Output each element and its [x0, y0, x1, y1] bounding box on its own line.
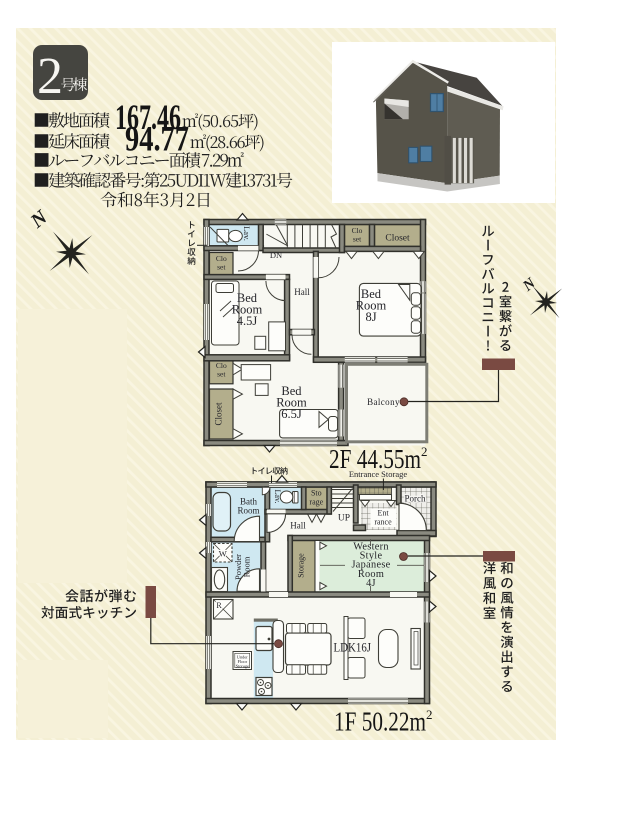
- svg-text:Room: Room: [242, 556, 252, 577]
- svg-text:Closet: Closet: [385, 234, 410, 244]
- svg-text:UP: UP: [338, 514, 350, 524]
- svg-text:Porch: Porch: [405, 494, 426, 504]
- svg-text:94.77: 94.77: [125, 119, 189, 159]
- svg-text:LDK16J: LDK16J: [334, 641, 372, 655]
- svg-text:Storage: Storage: [236, 663, 249, 668]
- svg-text:Balcony: Balcony: [367, 397, 400, 407]
- svg-text:2: 2: [426, 707, 433, 722]
- svg-text:set: set: [217, 263, 226, 272]
- svg-text:1F 50.22m: 1F 50.22m: [334, 707, 426, 737]
- svg-text:DN: DN: [270, 250, 282, 260]
- svg-text:R: R: [216, 601, 222, 610]
- svg-text:Sto: Sto: [311, 489, 322, 498]
- svg-text:Hall: Hall: [294, 287, 310, 297]
- svg-text:4J: 4J: [366, 578, 376, 589]
- svg-text:Room: Room: [237, 506, 259, 516]
- svg-text:6.5J: 6.5J: [281, 407, 302, 421]
- svg-text:Storage: Storage: [296, 553, 305, 578]
- svg-text:8J: 8J: [365, 310, 376, 324]
- svg-text:rage: rage: [309, 498, 323, 507]
- svg-text:Entrance Storage: Entrance Storage: [349, 469, 408, 479]
- svg-text:4.5J: 4.5J: [237, 314, 258, 328]
- svg-text:Hall: Hall: [290, 521, 306, 531]
- svg-text:Lav.: Lav.: [273, 490, 282, 504]
- svg-text:2: 2: [421, 444, 428, 459]
- svg-text:Closet: Closet: [213, 402, 223, 426]
- svg-text:2: 2: [37, 48, 63, 105]
- svg-text:set: set: [353, 235, 362, 244]
- svg-text:set: set: [217, 370, 226, 379]
- svg-text:W: W: [219, 549, 227, 559]
- svg-text:Ent: Ent: [377, 509, 389, 518]
- svg-text:rance: rance: [374, 518, 392, 527]
- svg-text:Lav.: Lav.: [242, 226, 252, 241]
